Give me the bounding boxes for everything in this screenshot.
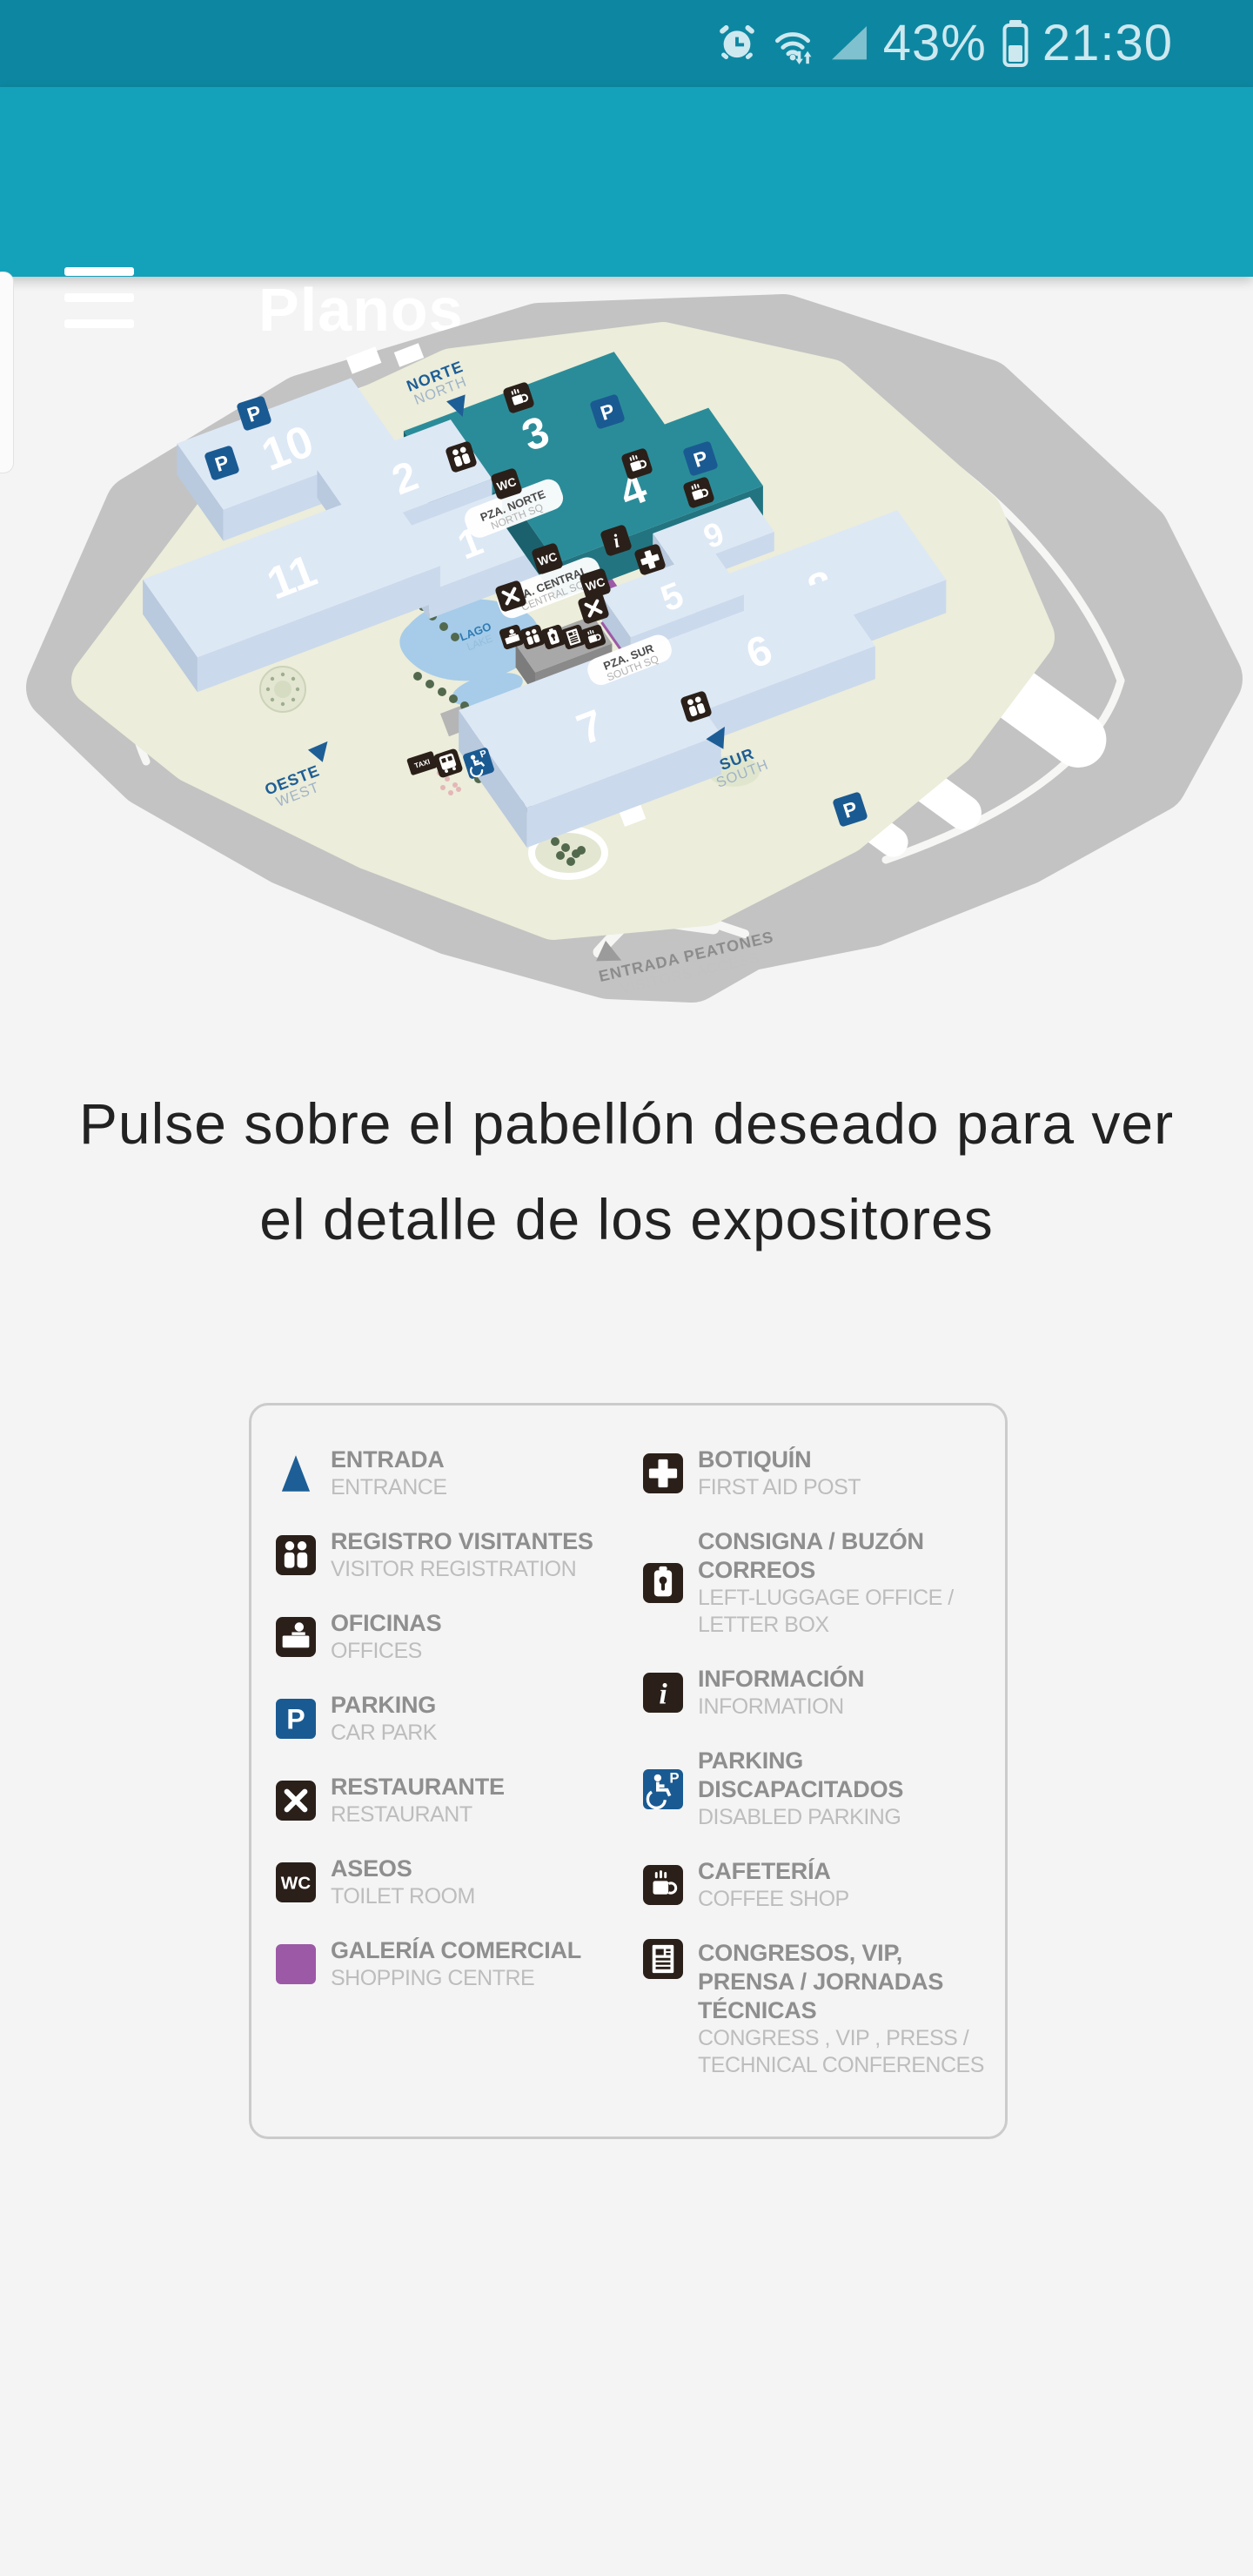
app-bar: Planos: [0, 87, 1253, 277]
shopping-gallery-icon: [276, 1944, 316, 1984]
left-luggage-icon: [643, 1563, 683, 1603]
alarm-clock-icon: [718, 24, 756, 63]
legend-item-coffee-shop: CAFETERÍA COFFEE SHOP: [643, 1857, 989, 1913]
legend-item-offices: OFICINAS OFFICES: [276, 1609, 643, 1665]
svg-text:WC: WC: [281, 1874, 312, 1894]
battery-icon: [1002, 20, 1029, 67]
legend-column-right: BOTIQUÍN FIRST AID POST CONSIGNA / BUZÓN…: [643, 1446, 989, 2105]
visitor-registration-icon: [276, 1535, 316, 1575]
information-icon: i: [643, 1673, 683, 1713]
clock-time: 21:30: [1042, 18, 1173, 69]
parking-icon: P: [276, 1699, 316, 1739]
legend-item-toilets: WC ASEOS TOILET ROOM: [276, 1855, 643, 1910]
first-aid-icon: [643, 1453, 683, 1493]
legend-item-restaurant: RESTAURANTE RESTAURANT: [276, 1773, 643, 1828]
legend-item-information: i INFORMACIÓN INFORMATION: [643, 1665, 989, 1721]
drawer-edge-hint[interactable]: [0, 272, 14, 473]
hamburger-icon: [64, 267, 134, 276]
legend-item-parking: P PARKING CAR PARK: [276, 1691, 643, 1747]
legend-item-entrance-triangle: ENTRADA ENTRANCE: [276, 1446, 643, 1501]
cellular-signal-icon: [829, 23, 869, 64]
svg-text:P: P: [286, 1704, 305, 1735]
coffee-shop-icon: [643, 1865, 683, 1905]
restaurant-icon: [276, 1781, 316, 1821]
legend-item-first-aid: BOTIQUÍN FIRST AID POST: [643, 1446, 989, 1501]
venue-map: 1032111498567 PZA. NORTE NORTH SQ PZA. C…: [0, 287, 1253, 1088]
app-screen: 43% 21:30 Planos 1032111498567 PZA. NORT…: [0, 0, 1253, 2576]
svg-text:i: i: [659, 1678, 667, 1710]
instruction-text: Pulse sobre el pabellón deseado para ver…: [0, 1076, 1253, 1267]
legend-column-left: ENTRADA ENTRANCE REGISTRO VISITANTES VIS…: [276, 1446, 643, 2105]
toilets-icon: WC: [276, 1862, 316, 1902]
wifi-icon: [772, 23, 814, 64]
legend-item-left-luggage: CONSIGNA / BUZÓN CORREOS LEFT-LUGGAGE OF…: [643, 1527, 989, 1639]
svg-text:P: P: [669, 1769, 679, 1786]
congress-icon: [643, 1939, 683, 1979]
disabled-parking-icon: P: [643, 1769, 683, 1809]
battery-percent: 43%: [883, 18, 987, 69]
legend-item-disabled-parking: P PARKING DISCAPACITADOS DISABLED PARKIN…: [643, 1747, 989, 1831]
entrance-triangle-icon: [276, 1453, 316, 1493]
map-legend: ENTRADA ENTRANCE REGISTRO VISITANTES VIS…: [249, 1403, 1008, 2139]
legend-item-visitor-registration: REGISTRO VISITANTES VISITOR REGISTRATION: [276, 1527, 643, 1583]
legend-item-congress: CONGRESOS, VIP, PRENSA / JORNADAS TÉCNIC…: [643, 1939, 989, 2079]
status-bar: 43% 21:30: [0, 0, 1253, 87]
legend-item-shopping-gallery: GALERÍA COMERCIAL SHOPPING CENTRE: [276, 1936, 643, 1992]
offices-icon: [276, 1617, 316, 1657]
